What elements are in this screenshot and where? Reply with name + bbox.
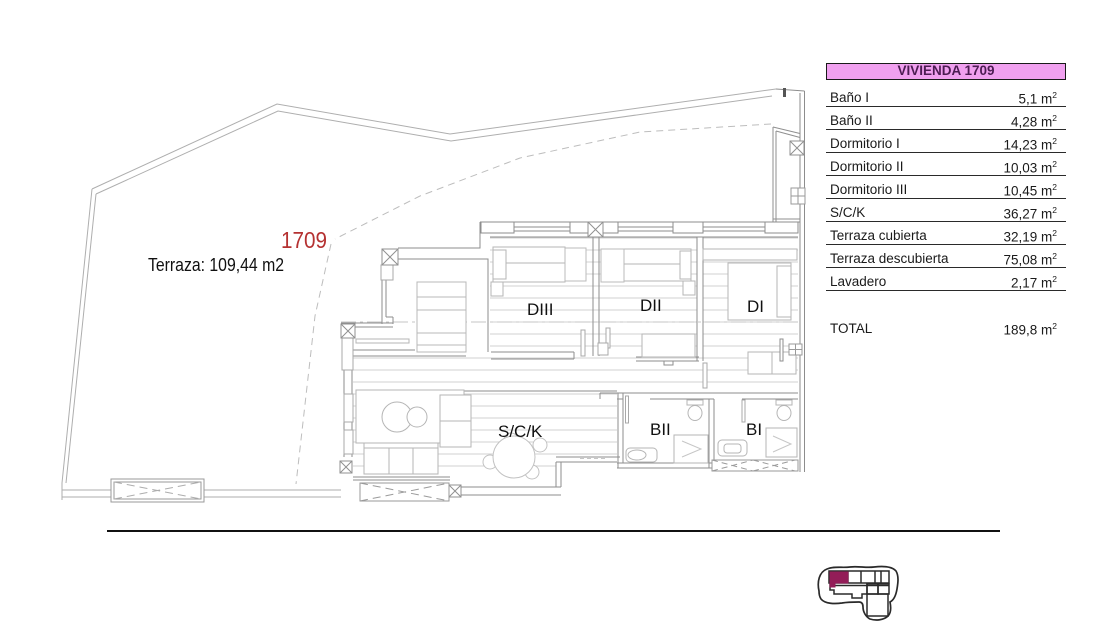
svg-text:DI: DI [747, 297, 764, 316]
svg-text:BI: BI [746, 420, 762, 439]
svg-text:1709: 1709 [281, 227, 327, 253]
svg-text:DIII: DIII [527, 300, 553, 319]
svg-text:Terraza: 109,44 m2: Terraza: 109,44 m2 [148, 255, 284, 275]
svg-text:S/C/K: S/C/K [498, 422, 543, 441]
svg-text:BII: BII [650, 420, 671, 439]
svg-text:DII: DII [640, 296, 662, 315]
